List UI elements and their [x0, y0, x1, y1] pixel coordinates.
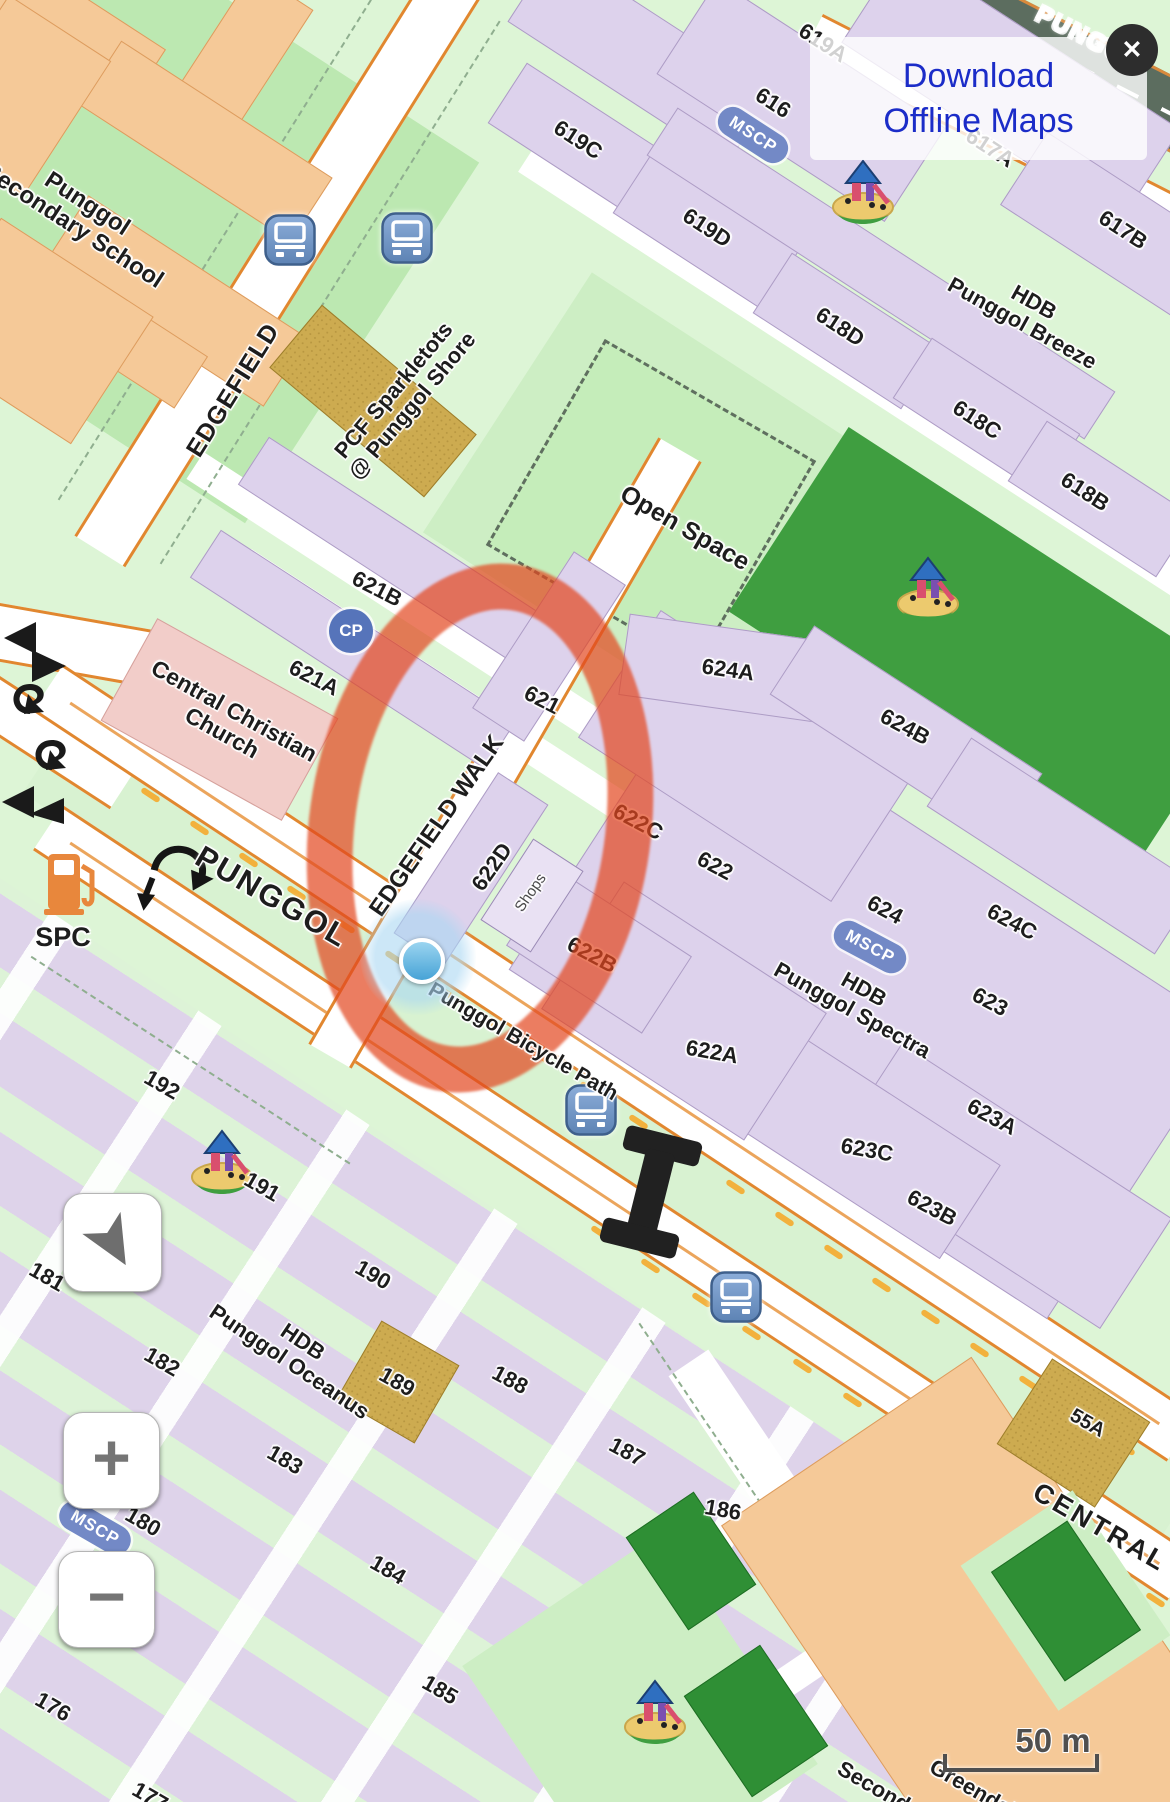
- locate-me-button[interactable]: [63, 1193, 162, 1292]
- map-label-line: 624B: [876, 704, 934, 750]
- plus-icon: +: [92, 1424, 131, 1490]
- scale-bar: [943, 1754, 1099, 1772]
- download-line1: Download: [903, 54, 1054, 98]
- map-label-line: 623B: [903, 1185, 961, 1231]
- navigation-arrow-icon: [73, 1203, 152, 1282]
- minus-icon: −: [87, 1563, 126, 1629]
- zoom-in-button[interactable]: +: [63, 1412, 160, 1509]
- download-line2: Offline Maps: [883, 99, 1073, 143]
- close-icon[interactable]: ✕: [1106, 24, 1158, 76]
- map-label-line: 616: [751, 83, 795, 123]
- bus-stop-icon[interactable]: [710, 1271, 762, 1323]
- map-screenshot: 619A616619C619D617A617BHDBPunggol Breeze…: [0, 0, 1170, 1802]
- map-label-line: 185: [418, 1671, 462, 1710]
- map-label-line: 186: [703, 1495, 743, 1525]
- map-label-line: SPC: [35, 923, 91, 952]
- map-label-line: 55A: [1066, 1405, 1109, 1442]
- map-label-line: 623: [968, 983, 1012, 1021]
- map-label-line: 177: [128, 1778, 172, 1802]
- map-label-line: 624C: [983, 899, 1041, 945]
- bus-stop-icon[interactable]: [381, 212, 433, 264]
- map-label-line: 184: [366, 1551, 410, 1590]
- map-label-line: 621A: [285, 655, 343, 700]
- map-label-line: 617B: [1094, 206, 1151, 255]
- current-location-dot: [399, 938, 445, 984]
- zoom-out-button[interactable]: −: [58, 1551, 155, 1648]
- map-label-line: 618B: [1056, 468, 1113, 517]
- map-label-line: Shops: [512, 871, 550, 915]
- download-offline-maps-button[interactable]: Download Offline Maps: [810, 37, 1147, 160]
